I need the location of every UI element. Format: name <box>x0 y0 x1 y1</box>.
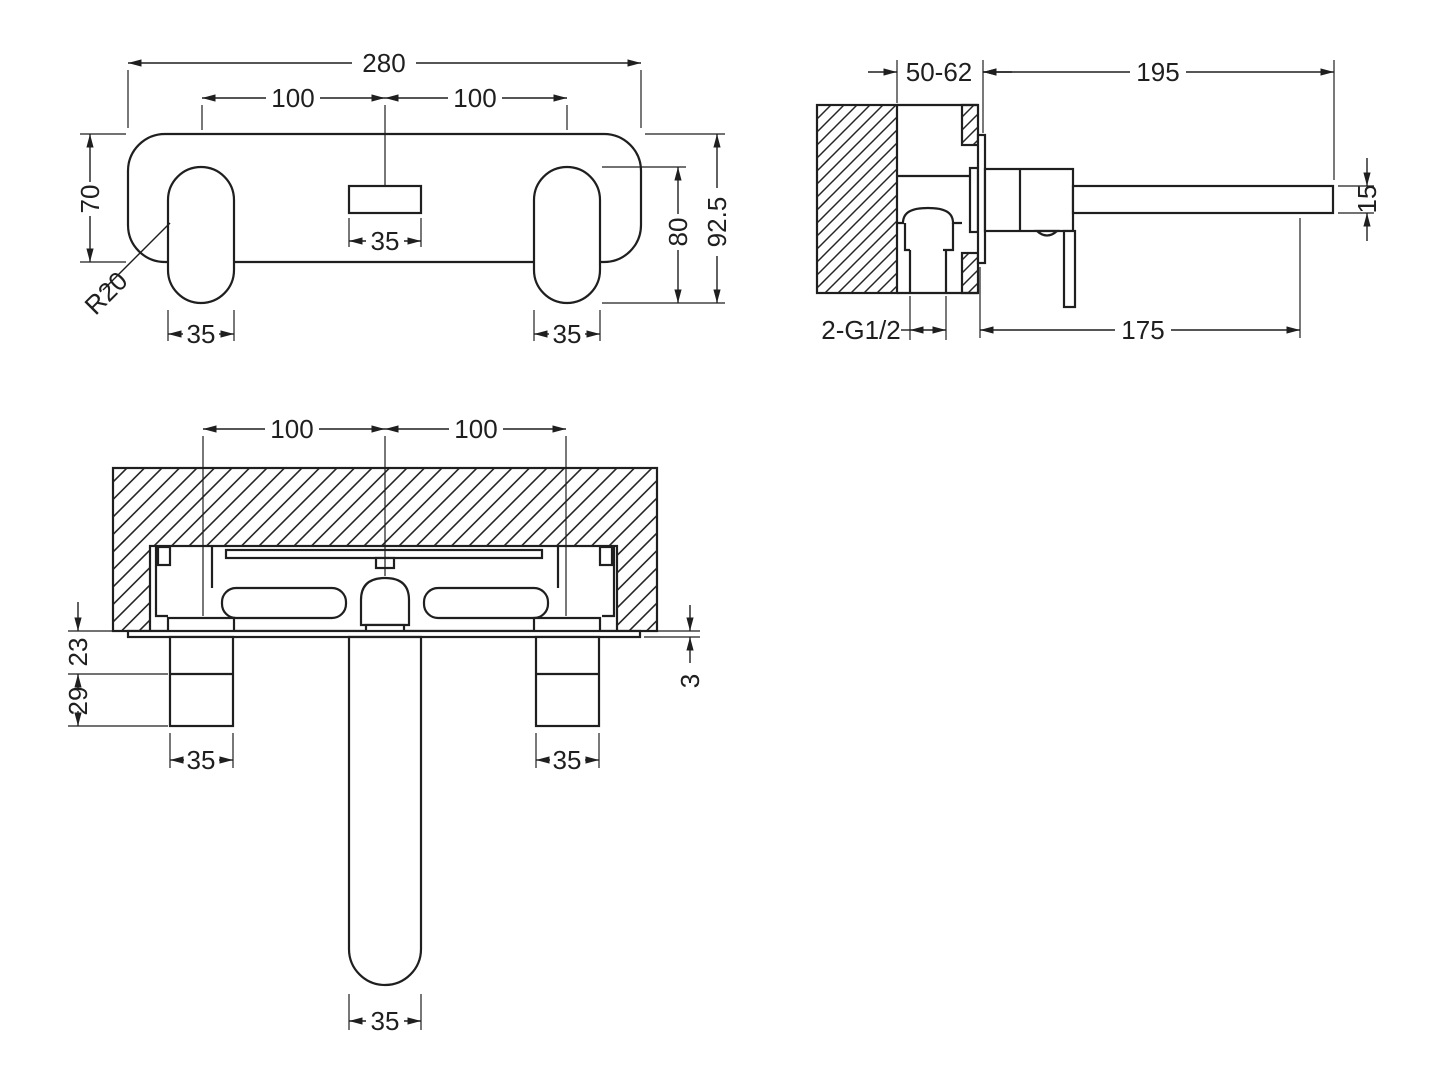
dim-spout-width: 35 <box>371 1006 400 1036</box>
spout-plan <box>349 637 421 985</box>
dim-handle-width-left: 35 <box>187 319 216 349</box>
left-cartridge <box>222 588 346 618</box>
inlet-dome <box>897 208 962 223</box>
mixer-body <box>985 169 1073 231</box>
right-cartridge <box>424 588 548 618</box>
dim-plate-height: 70 <box>75 185 105 214</box>
side-view: 50-62 195 15 175 2-G1/2 <box>817 57 1382 345</box>
dim-corner-radius: R20 <box>79 266 134 321</box>
right-handle-cutout <box>534 167 600 303</box>
dim-handle-opening-height: 80 <box>663 218 693 247</box>
right-handle-plan <box>536 637 599 726</box>
dim-pitch-left: 100 <box>271 83 314 113</box>
mounting-bar <box>226 550 542 558</box>
dim-section-handle-width-right: 35 <box>553 745 582 775</box>
dim-spout-reach: 195 <box>1136 57 1179 87</box>
dim-handle-width-right: 35 <box>553 319 582 349</box>
dim-inlet-thread: 2-G1/2 <box>821 315 901 345</box>
dim-spout-hole-width: 35 <box>371 226 400 256</box>
dim-plate-thickness: 3 <box>675 674 705 688</box>
left-housing-step <box>158 547 170 565</box>
dim-section-handle-width-left: 35 <box>187 745 216 775</box>
dim-spout-thickness: 15 <box>1352 185 1382 214</box>
dim-overall-width: 280 <box>362 48 405 78</box>
dim-pitch-right: 100 <box>453 83 496 113</box>
spout-connection-dome <box>361 578 409 625</box>
inlet-block <box>905 223 953 250</box>
technical-drawing-canvas: 280 100 100 70 80 92.5 35 <box>0 0 1445 1077</box>
handle-pivot <box>1037 231 1057 236</box>
handle-lever <box>1064 231 1075 307</box>
wall-finish-strip-bottom <box>962 253 978 293</box>
spout-side <box>1073 186 1333 213</box>
dim-handle-base-depth: 23 <box>63 638 93 667</box>
dim-spout-reach-lower: 175 <box>1121 315 1164 345</box>
dim-section-pitch-left: 100 <box>270 414 313 444</box>
drawing-svg: 280 100 100 70 80 92.5 35 <box>0 0 1445 1077</box>
left-handle-cutout <box>168 167 234 303</box>
section-view: 100 100 23 29 3 35 35 <box>63 414 705 1036</box>
wall-section <box>817 105 897 293</box>
left-handle-plan <box>170 637 233 726</box>
wall-finish-strip-top <box>962 105 978 145</box>
dim-overall-height: 92.5 <box>702 197 732 248</box>
valve-flange <box>970 168 978 232</box>
front-view: 280 100 100 70 80 92.5 35 <box>75 48 732 349</box>
inlet-pipe <box>910 250 946 293</box>
spout-hole <box>349 186 421 213</box>
dim-section-pitch-right: 100 <box>454 414 497 444</box>
dim-wall-depth-range: 50-62 <box>906 57 973 87</box>
right-housing-step <box>600 547 612 565</box>
